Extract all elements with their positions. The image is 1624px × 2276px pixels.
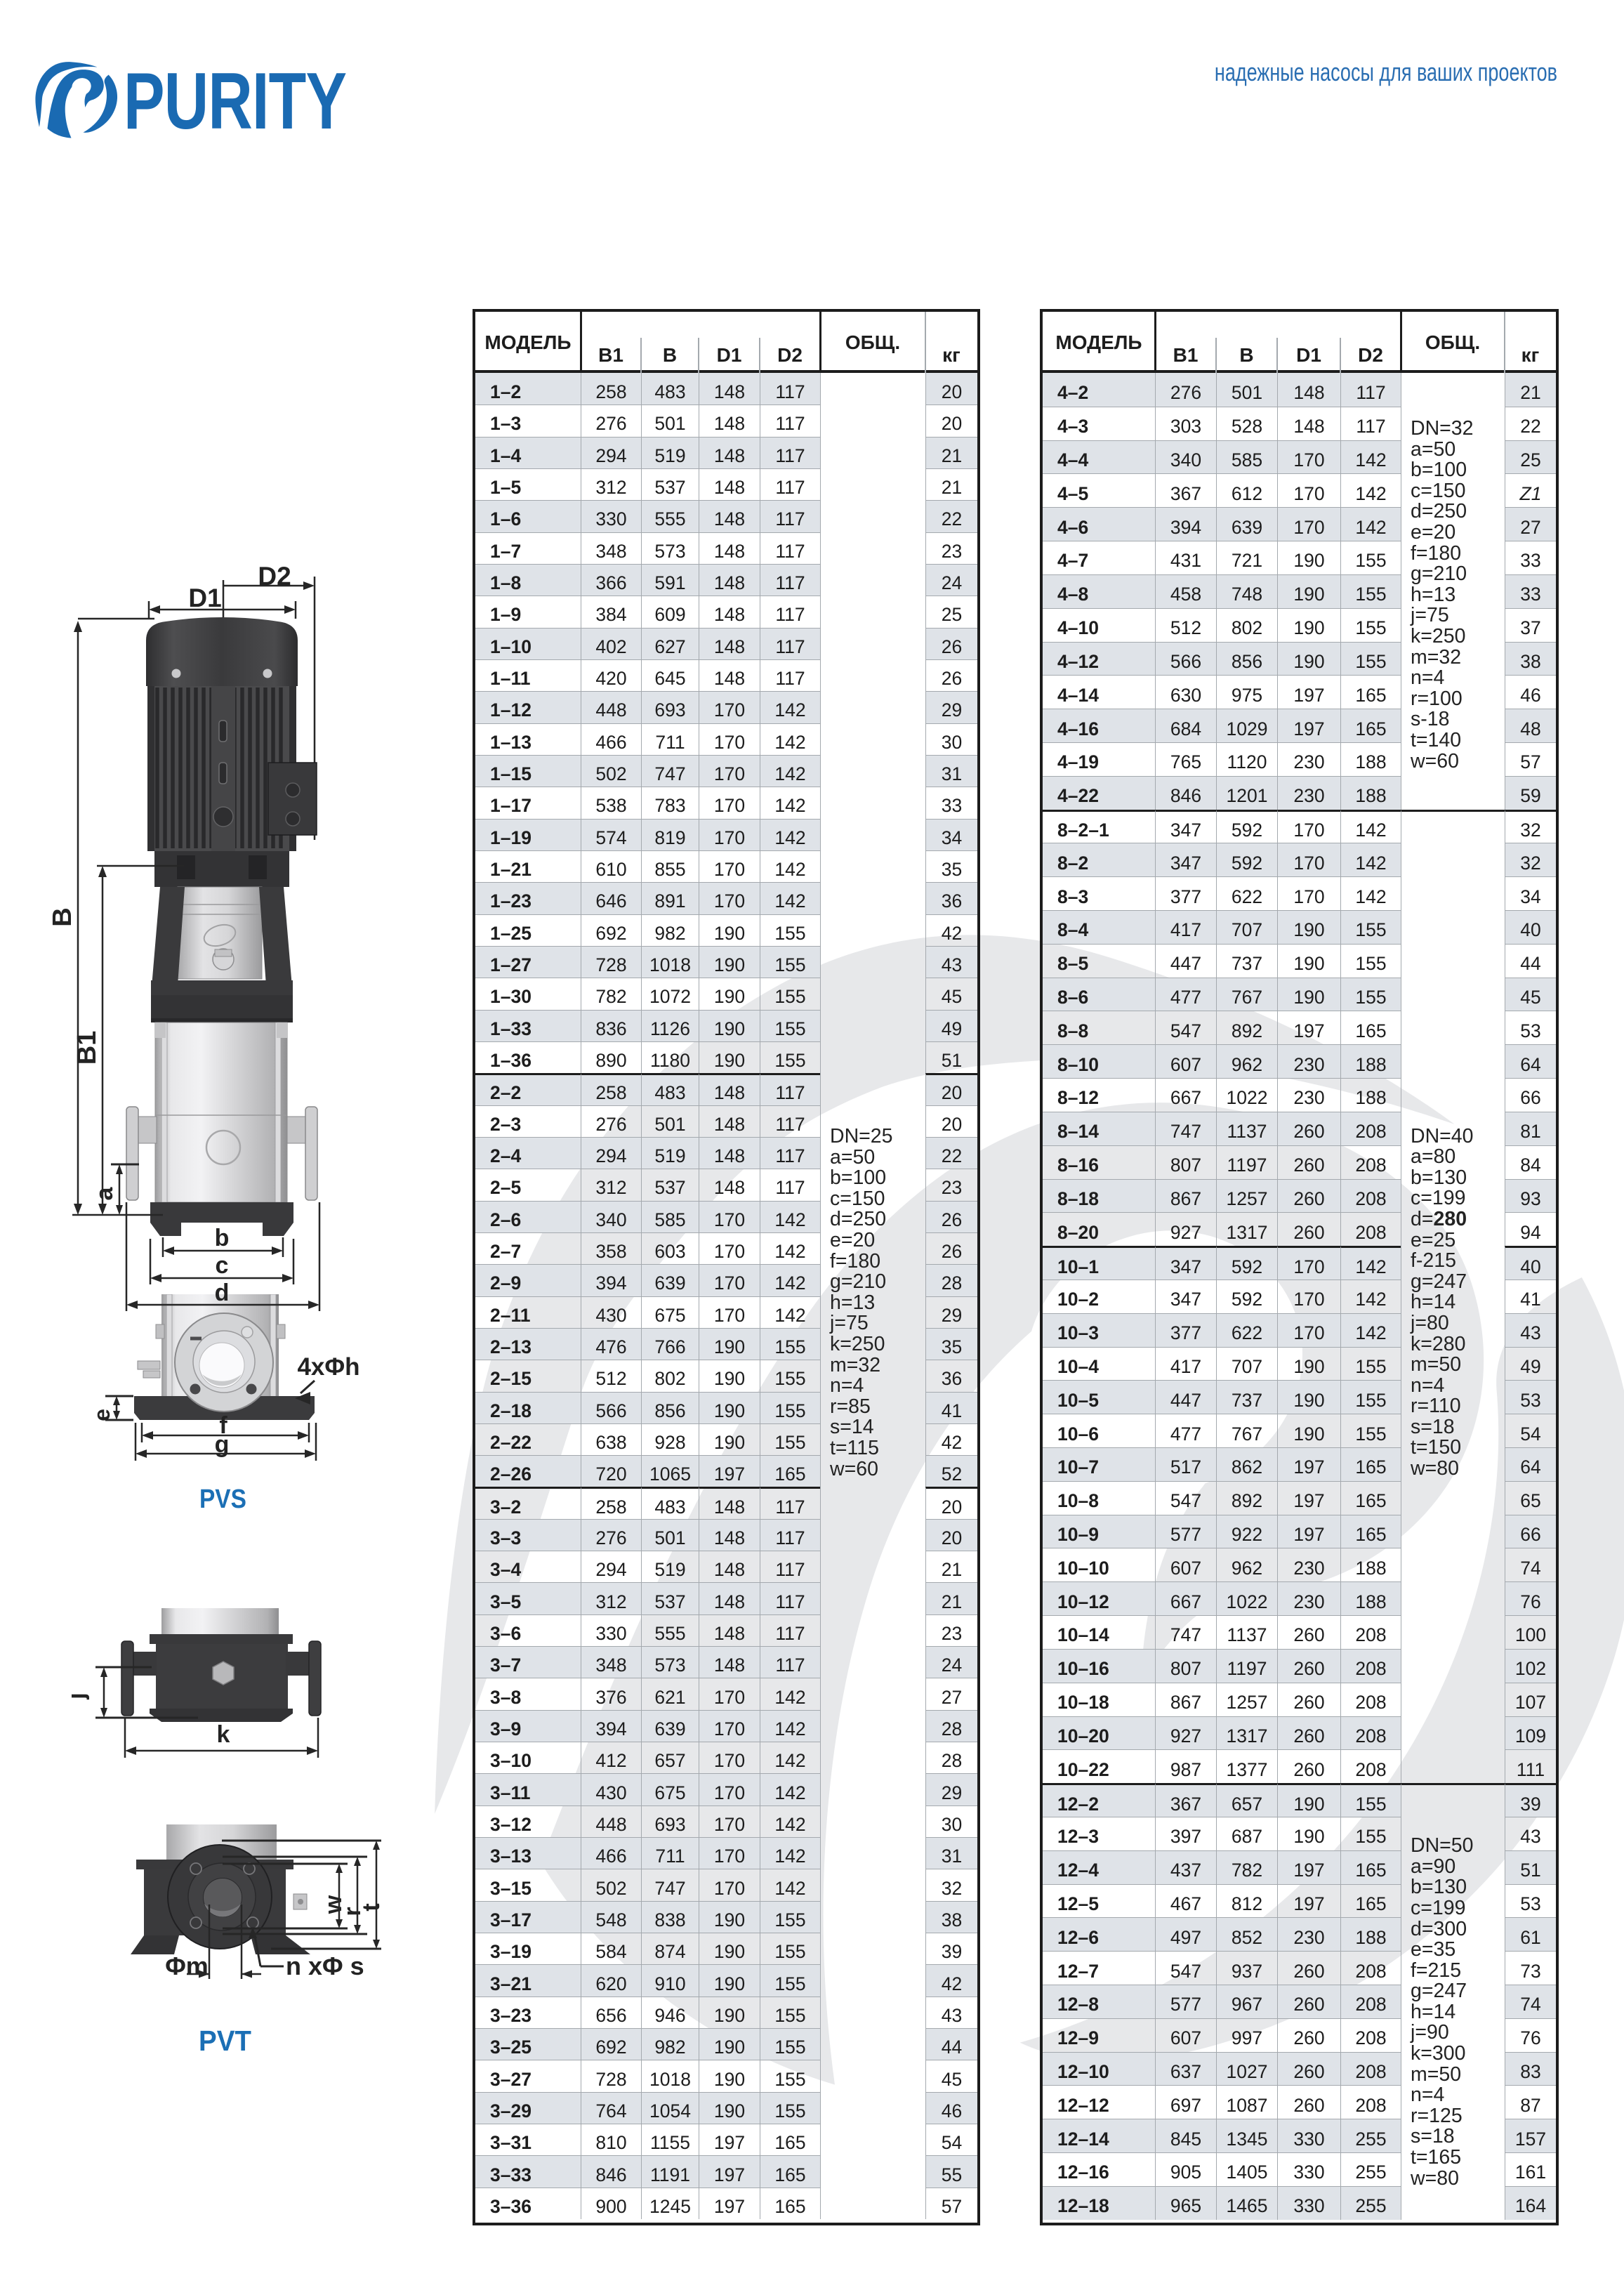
svg-text:t: t bbox=[358, 1903, 385, 1911]
svg-text:d: d bbox=[215, 1280, 230, 1306]
svg-text:j: j bbox=[70, 1692, 90, 1699]
svg-text:B1: B1 bbox=[72, 1031, 102, 1065]
svg-text:c: c bbox=[216, 1252, 229, 1279]
svg-text:D1: D1 bbox=[188, 584, 221, 612]
svg-text:B: B bbox=[48, 907, 77, 926]
svg-text:a: a bbox=[91, 1186, 118, 1200]
svg-text:n xΦ s: n xΦ s bbox=[286, 1952, 364, 1980]
svg-text:4xΦh: 4xΦh bbox=[297, 1353, 359, 1381]
svg-text:b: b bbox=[215, 1225, 230, 1251]
svg-text:k: k bbox=[217, 1721, 230, 1748]
